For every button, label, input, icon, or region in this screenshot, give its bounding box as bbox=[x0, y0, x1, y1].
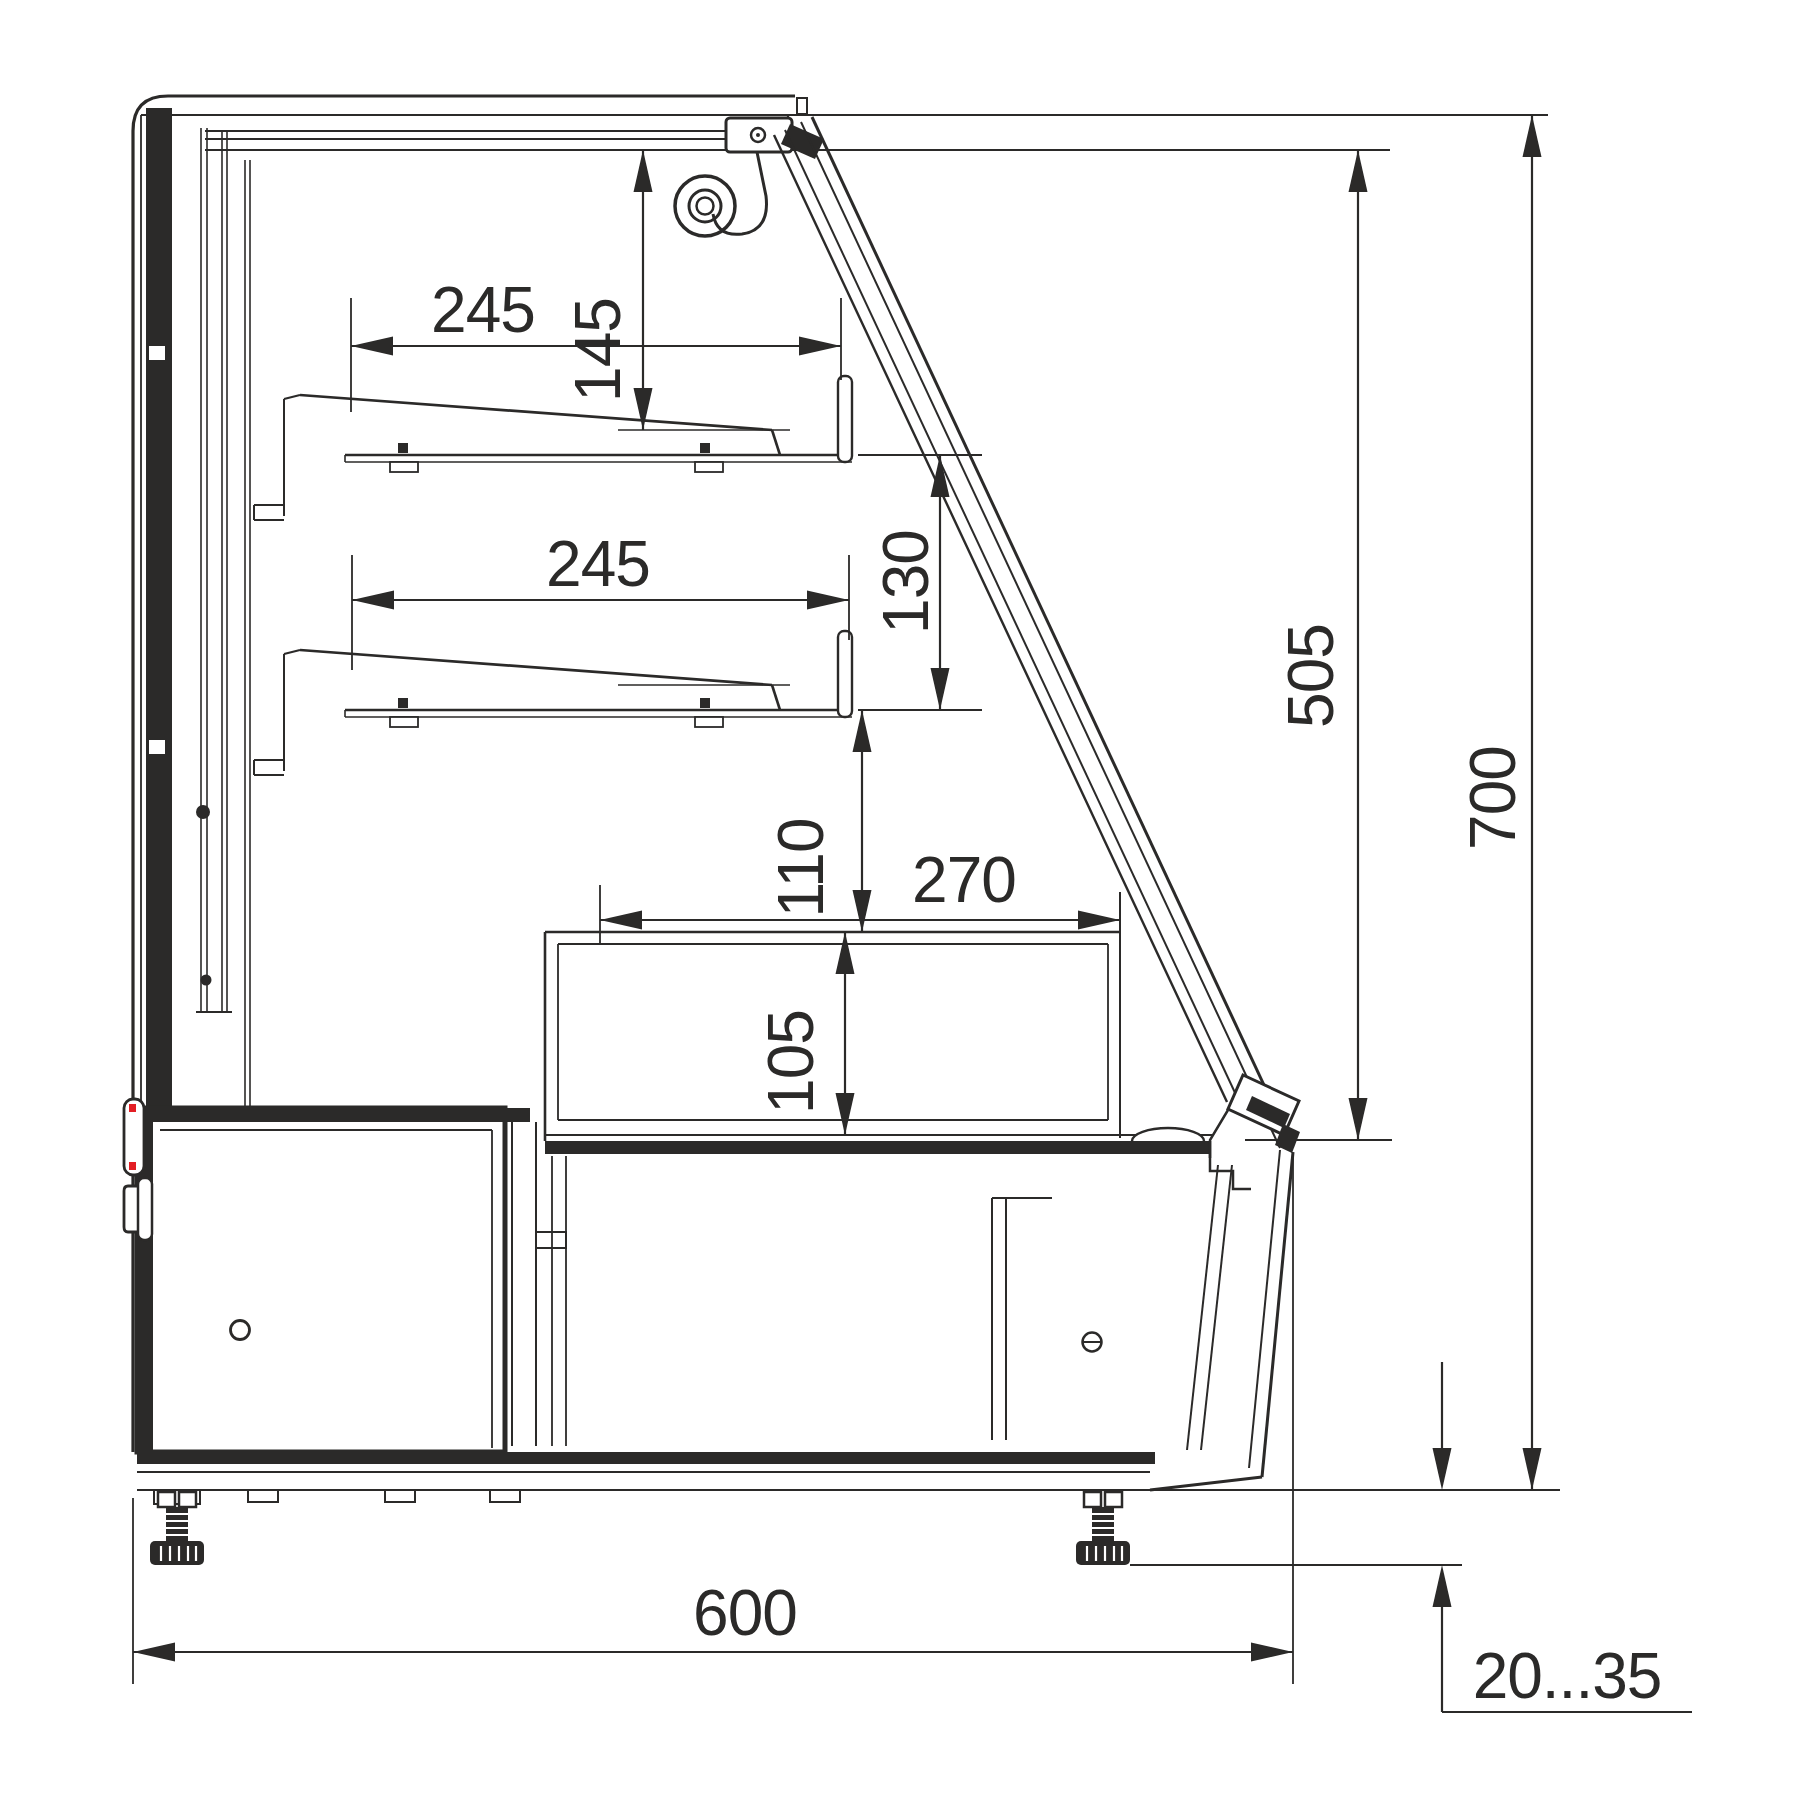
shelf-front-rail bbox=[838, 631, 852, 717]
dim-shelf-lower-245: 245 bbox=[352, 528, 849, 670]
dim-well-105: 105 bbox=[755, 932, 855, 1135]
dim-glass-505: 505 bbox=[1245, 150, 1392, 1140]
base-plinth bbox=[137, 1452, 1560, 1504]
dim-text: 145 bbox=[562, 298, 634, 402]
dim-text: 245 bbox=[546, 528, 650, 600]
led-lamp bbox=[675, 152, 767, 236]
door-hole bbox=[231, 1321, 250, 1340]
cross-section-canvas: 245 145 245 130 110 270 bbox=[0, 0, 1800, 1813]
adjustable-foot-right bbox=[1076, 1492, 1130, 1565]
front-lower-structure bbox=[992, 1150, 1293, 1490]
dim-text: 20...35 bbox=[1473, 1640, 1662, 1712]
dim-shelf-deck-110: 110 bbox=[765, 710, 872, 932]
technical-drawing: 245 145 245 130 110 270 bbox=[0, 0, 1800, 1813]
deck-front-bump bbox=[1132, 1128, 1204, 1141]
dim-leg-range-20-35: 20...35 bbox=[1433, 1362, 1693, 1712]
display-well bbox=[545, 892, 1251, 1189]
dim-text: 270 bbox=[912, 844, 1016, 916]
indicator-dot bbox=[129, 1162, 136, 1170]
dim-text: 600 bbox=[693, 1577, 797, 1649]
dim-total-height-700: 700 bbox=[1457, 115, 1542, 1490]
back-panel-screw bbox=[201, 975, 212, 986]
dim-text: 110 bbox=[765, 818, 837, 917]
shelf-upper bbox=[254, 376, 852, 520]
dim-canopy-145: 145 bbox=[562, 150, 653, 430]
back-panel-screw bbox=[196, 805, 210, 819]
shelf-lower bbox=[254, 631, 852, 775]
machine-compartment bbox=[124, 1099, 566, 1452]
shelf-front-rail bbox=[838, 376, 852, 462]
dim-text: 245 bbox=[431, 274, 535, 346]
machine-door bbox=[137, 1108, 505, 1452]
glass-clamp-tab bbox=[797, 98, 807, 114]
dim-text: 505 bbox=[1275, 624, 1347, 728]
dim-text: 700 bbox=[1457, 746, 1529, 850]
canopy bbox=[141, 98, 1548, 159]
dim-shelf-gap-130: 130 bbox=[858, 455, 982, 710]
dim-text: 130 bbox=[870, 530, 942, 634]
dim-text: 105 bbox=[755, 1010, 827, 1114]
indicator-dot bbox=[129, 1104, 136, 1112]
